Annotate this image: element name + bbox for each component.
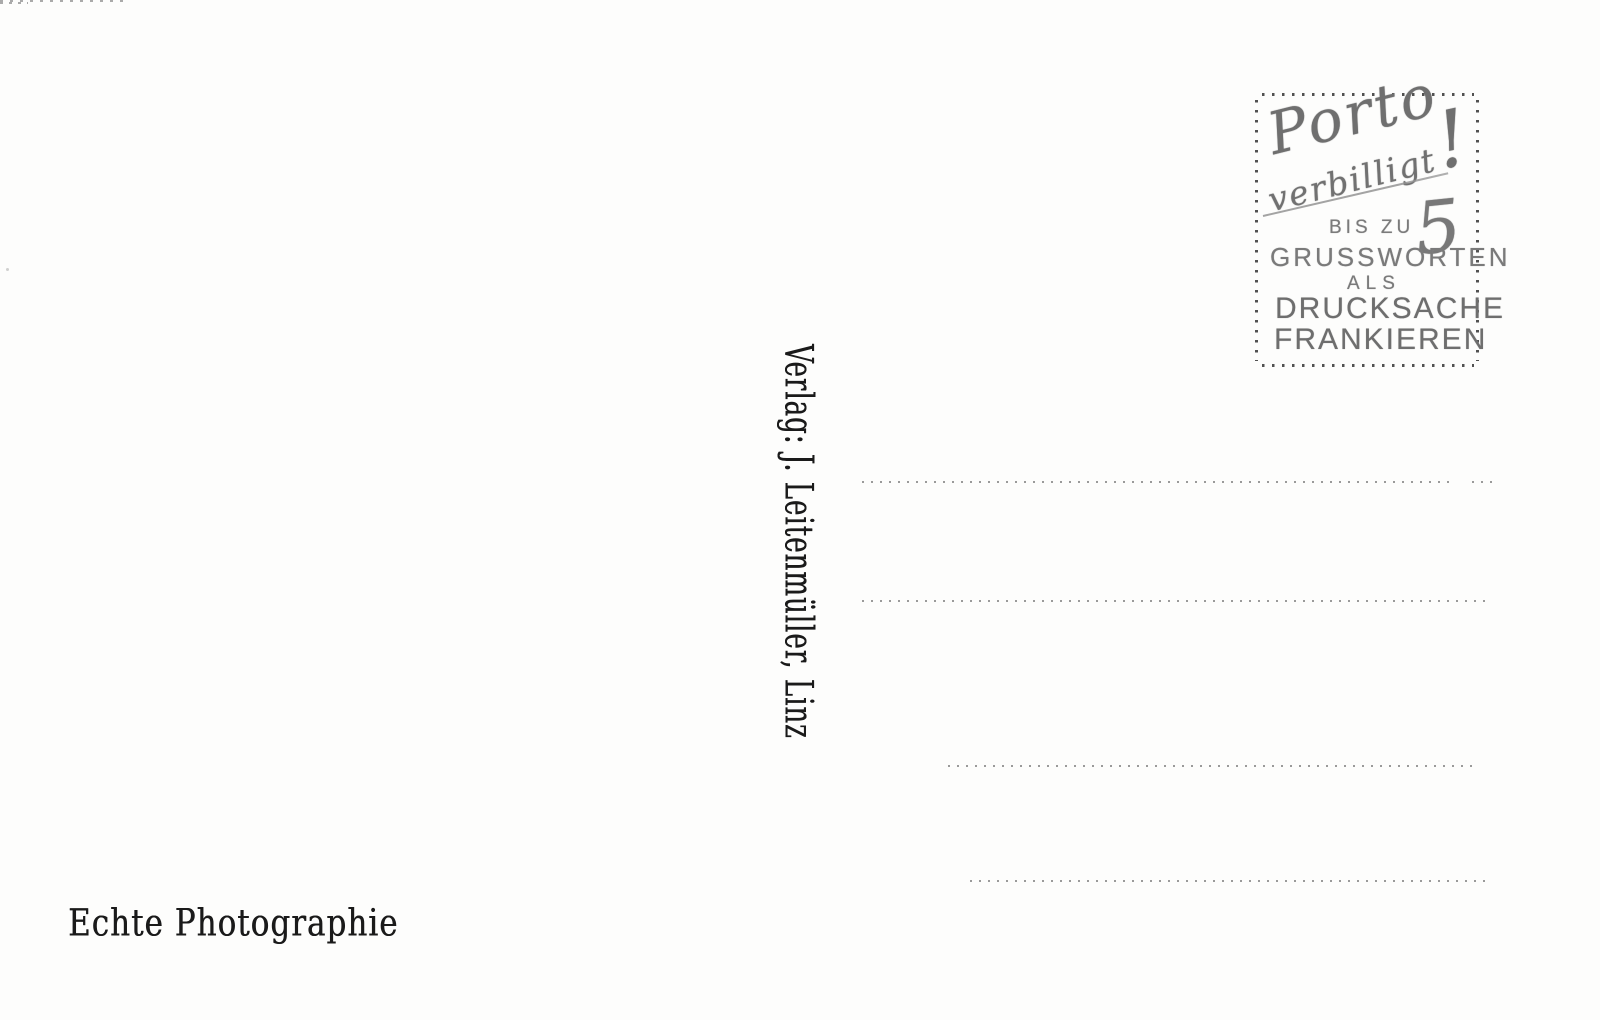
stamp-line-drucksache: DRUCKSACHE xyxy=(1275,292,1505,326)
address-line-1-end-segment xyxy=(1472,481,1494,483)
scan-speck-left-edge xyxy=(6,268,9,271)
stamp-line-grussworten: GRUSSWORTEN xyxy=(1270,242,1511,273)
stamp-dotted-border-bottom xyxy=(1262,364,1474,367)
address-line-4 xyxy=(970,880,1487,882)
stamp-line-bis-zu: BIS ZU xyxy=(1329,217,1414,239)
postage-stamp-box: Porto ! verbilligt BIS ZU 5 GRUSSWORTEN … xyxy=(1255,93,1479,367)
photo-authenticity-note: Echte Photographie xyxy=(68,902,398,945)
postcard-back: Porto ! verbilligt BIS ZU 5 GRUSSWORTEN … xyxy=(0,0,1600,1020)
publisher-vertical-imprint: Verlag: J. Leitenmüller, Linz xyxy=(775,344,820,739)
address-line-1 xyxy=(862,481,1455,483)
stamp-dotted-border-left xyxy=(1255,100,1258,361)
address-line-3 xyxy=(948,765,1472,767)
stamp-line-frankieren: FRANKIEREN xyxy=(1274,323,1487,357)
scan-speck-bottom-right xyxy=(0,2,28,4)
address-line-2 xyxy=(862,600,1490,602)
